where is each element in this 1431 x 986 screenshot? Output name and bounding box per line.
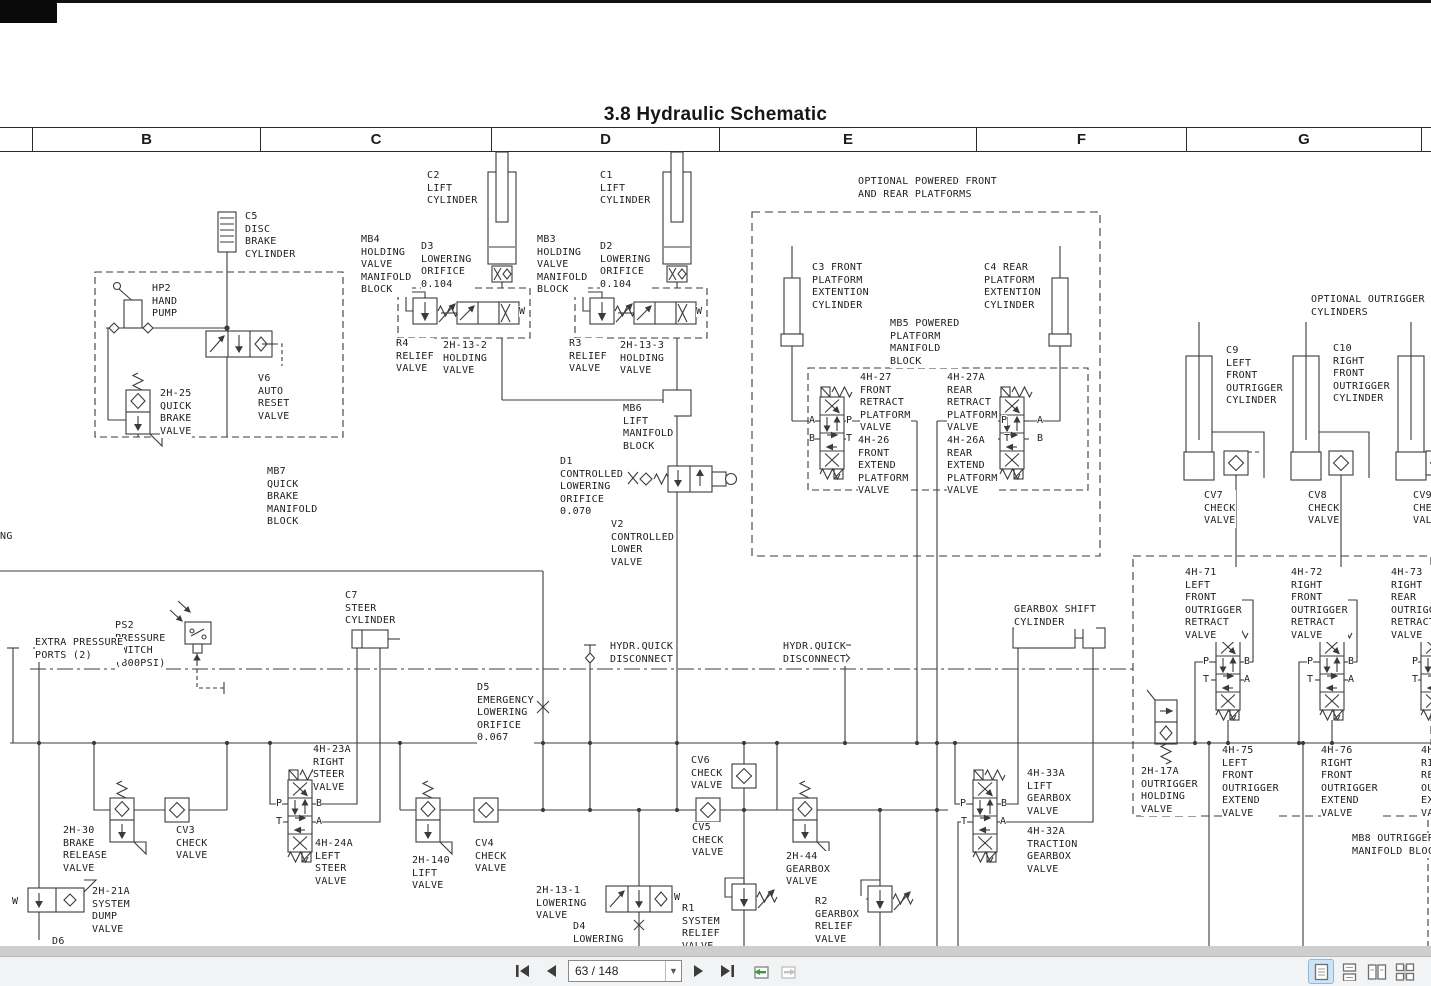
- schematic-label: V2 CONTROLLED LOWER VALVE: [611, 519, 674, 569]
- port-letter: T: [961, 816, 967, 827]
- schematic-label: 2H-44 GEARBOX VALVE: [786, 851, 830, 889]
- schematic-label: 2H-13-3 HOLDING VALVE: [620, 340, 664, 378]
- schematic-label: C2 LIFT CYLINDER: [427, 170, 478, 208]
- port-letter: A: [1037, 415, 1043, 426]
- view-mode-single-page[interactable]: [1309, 960, 1333, 983]
- port-letter: W: [674, 892, 680, 903]
- schematic-label: 2H-13-1 LOWERING VALVE: [536, 885, 587, 923]
- schematic-label: 4H-32A TRACTION GEARBOX VALVE: [1027, 826, 1078, 876]
- previous-view-icon: [751, 963, 771, 980]
- page-bottom-edge: [0, 946, 1431, 956]
- port-letter: T: [276, 816, 282, 827]
- schematic-label: D1 CONTROLLED LOWERING ORIFICE 0.070: [560, 456, 623, 519]
- port-letter: B: [1001, 798, 1007, 809]
- port-letter: P: [846, 415, 852, 426]
- port-letter: B: [316, 798, 322, 809]
- port-letter: P: [1203, 656, 1209, 667]
- schematic-label: HYDR.QUICK DISCONNECT: [610, 641, 673, 666]
- schematic-label: V6 AUTO RESET VALVE: [258, 373, 290, 423]
- schematic-label: OPTIONAL POWERED FRONT AND REAR PLATFORM…: [858, 176, 997, 201]
- port-letter: B: [1244, 656, 1250, 667]
- port-letter: A: [1348, 674, 1354, 685]
- schematic-label: HYDR.QUICK DISCONNECT: [783, 641, 846, 666]
- page-navigation: 63 / 148 ▼: [512, 960, 800, 982]
- port-letter: P: [1001, 415, 1007, 426]
- port-letter: W: [696, 306, 702, 317]
- schematic-label: MB5 POWERED PLATFORM MANIFOLD BLOCK: [890, 318, 960, 368]
- schematic-label: R1 SYSTEM RELIEF VALVE: [682, 903, 720, 946]
- schematic-label: C7 STEER CYLINDER: [345, 590, 396, 628]
- next-page-button[interactable]: [688, 960, 710, 982]
- center-valves-symbols: [416, 628, 1105, 946]
- schematic-label: R2 GEARBOX RELIEF VALVE (500PSI): [815, 896, 866, 946]
- schematic-label: 4H-23A RIGHT STEER VALVE: [313, 744, 351, 794]
- port-letter: W: [12, 896, 18, 907]
- schematic-label: 4H-27 FRONT RETRACT PLATFORM VALVE: [860, 372, 911, 435]
- schematic-label: CV8 CHECK VALVE: [1308, 490, 1340, 528]
- schematic-label: C3 FRONT PLATFORM EXTENTION CYLINDER: [812, 262, 869, 312]
- schematic-label: R4 RELIEF VALVE: [396, 338, 434, 376]
- port-letter: T: [1412, 674, 1418, 685]
- continuous-icon: [1342, 963, 1357, 981]
- schematic-label: D6: [52, 936, 65, 946]
- port-letter: A: [1244, 674, 1250, 685]
- schematic-label: MB4 HOLDING VALVE MANIFOLD BLOCK: [361, 234, 412, 297]
- last-page-button[interactable]: [716, 960, 738, 982]
- schematic-label: C10 RIGHT FRONT OUTRIGGER CYLINDER: [1333, 343, 1390, 406]
- schematic-label: CV7 CHECK VALVE: [1204, 490, 1236, 528]
- schematic-label: 4H-26A REAR EXTEND PLATFORM VALVE: [947, 435, 998, 498]
- schematic-label: C5 DISC BRAKE CYLINDER: [245, 211, 296, 261]
- view-mode-continuous[interactable]: [1337, 960, 1361, 983]
- schematic-label: 4H-24A LEFT STEER VALVE: [315, 838, 353, 888]
- previous-view-button[interactable]: [750, 960, 772, 982]
- schematic-label: C9 LEFT FRONT OUTRIGGER CYLINDER: [1226, 345, 1283, 408]
- facing-icon: [1367, 963, 1387, 981]
- schematic-label: 2H-21A SYSTEM DUMP VALVE: [92, 886, 130, 936]
- port-letter: T: [846, 433, 852, 444]
- pdf-viewer-window: { "document": { "title": "3.8 Hydraulic …: [0, 0, 1431, 985]
- schematic-label: CV3 CHECK VALVE: [176, 825, 208, 863]
- port-letter: B: [1037, 433, 1043, 444]
- port-letter: P: [276, 798, 282, 809]
- viewer-toolbar: 63 / 148 ▼: [0, 956, 1431, 986]
- schematic-label: D2 LOWERING ORIFICE 0.104: [600, 241, 651, 291]
- schematic-label: 4H-75 LEFT FRONT OUTRIGGER EXTEND VALVE: [1222, 745, 1279, 820]
- first-page-icon: [515, 964, 531, 978]
- schematic-label: 4H-26 FRONT EXTEND PLATFORM VALVE: [858, 435, 909, 498]
- schematic-label: NG: [0, 531, 13, 544]
- schematic-label: EXTRA PRESSURE PORTS (2): [35, 637, 124, 662]
- schematic-label: 4H-72 RIGHT FRONT OUTRIGGER RETRACT VALV…: [1291, 567, 1348, 642]
- schematic-label: 4H-77 RIGHT REAR OUTRIGGER EXTEND VALVE: [1421, 745, 1431, 820]
- schematic-label: 4H-27A REAR RETRACT PLATFORM VALVE: [947, 372, 998, 435]
- schematic-label: OPTIONAL OUTRIGGER CYLINDERS: [1311, 294, 1425, 319]
- port-letter: P: [960, 798, 966, 809]
- next-view-button[interactable]: [778, 960, 800, 982]
- schematic-label: C4 REAR PLATFORM EXTENTION CYLINDER: [984, 262, 1041, 312]
- facing-continuous-icon: [1395, 963, 1415, 981]
- schematic-label: CV9 CHECK VALVE: [1413, 490, 1431, 528]
- schematic-label: 2H-30 BRAKE RELEASE VALVE: [63, 825, 107, 875]
- schematic-label: CV4 CHECK VALVE: [475, 838, 507, 876]
- schematic-label: 2H-140 LIFT VALVE: [412, 855, 450, 893]
- page-number-value: 63 / 148: [569, 964, 665, 978]
- next-page-icon: [693, 964, 705, 978]
- schematic-label: MB6 LIFT MANIFOLD BLOCK: [623, 403, 674, 453]
- schematic-label: GEARBOX SHIFT CYLINDER: [1014, 604, 1096, 629]
- schematic-label: 4H-76 RIGHT FRONT OUTRIGGER EXTEND VALVE: [1321, 745, 1378, 820]
- schematic-label: D5 EMERGENCY LOWERING ORIFICE 0.067: [477, 682, 534, 745]
- schematic-label: 2H-13-2 HOLDING VALVE: [443, 340, 487, 378]
- port-letter: A: [809, 415, 815, 426]
- last-page-icon: [719, 964, 735, 978]
- first-page-button[interactable]: [512, 960, 534, 982]
- schematic-label: CV6 CHECK VALVE: [691, 755, 723, 793]
- port-letter: B: [1348, 656, 1354, 667]
- schematic-label: MB3 HOLDING VALVE MANIFOLD BLOCK: [537, 234, 588, 297]
- port-letter: P: [1307, 656, 1313, 667]
- page-number-input[interactable]: 63 / 148 ▼: [568, 960, 682, 982]
- view-mode-facing[interactable]: [1365, 960, 1389, 983]
- port-letter: T: [1004, 433, 1010, 444]
- port-letter: A: [316, 816, 322, 827]
- schematic-label: 2H-17A OUTRIGGER HOLDING VALVE: [1141, 766, 1198, 816]
- schematic-label: 4H-73 RIGHT REAR OUTRIGGER RETRACT VALVE: [1391, 567, 1431, 642]
- view-mode-group: [1309, 960, 1417, 983]
- previous-page-button[interactable]: [540, 960, 562, 982]
- single-page-icon: [1314, 963, 1329, 981]
- port-letter: B: [809, 433, 815, 444]
- schematic-drawing: [0, 0, 1431, 946]
- schematic-label: HP2 HAND PUMP: [152, 283, 177, 321]
- view-mode-facing-continuous[interactable]: [1393, 960, 1417, 983]
- schematic-label: CV5 CHECK VALVE: [692, 822, 724, 860]
- schematic-label: D3 LOWERING ORIFICE 0.104: [421, 241, 472, 291]
- schematic-label: MB8 OUTRIGGER MANIFOLD BLOCK: [1352, 833, 1431, 858]
- schematic-label: D4 LOWERING: [573, 921, 624, 946]
- schematic-label: 4H-71 LEFT FRONT OUTRIGGER RETRACT VALVE: [1185, 567, 1242, 642]
- schematic-label: R3 RELIEF VALVE: [569, 338, 607, 376]
- port-letter: A: [1000, 816, 1006, 827]
- schematic-label: MB7 QUICK BRAKE MANIFOLD BLOCK: [267, 466, 318, 529]
- schematic-label: 4H-33A LIFT GEARBOX VALVE: [1027, 768, 1071, 818]
- pdf-page: 3.8 Hydraulic Schematic B C D E F G: [0, 0, 1431, 946]
- schematic-label: C1 LIFT CYLINDER: [600, 170, 651, 208]
- port-letter: P: [1412, 656, 1418, 667]
- port-letter: T: [1307, 674, 1313, 685]
- page-dropdown-caret[interactable]: ▼: [665, 961, 681, 981]
- brake-circuit-symbols: [95, 212, 343, 446]
- junction-dots: [37, 741, 1334, 812]
- port-letter: T: [1203, 674, 1209, 685]
- next-view-icon: [779, 963, 799, 980]
- pressure-switch-symbol: [170, 601, 224, 694]
- port-letter: W: [519, 306, 525, 317]
- schematic-label: 2H-25 QUICK BRAKE VALVE: [160, 388, 192, 438]
- previous-page-icon: [545, 964, 557, 978]
